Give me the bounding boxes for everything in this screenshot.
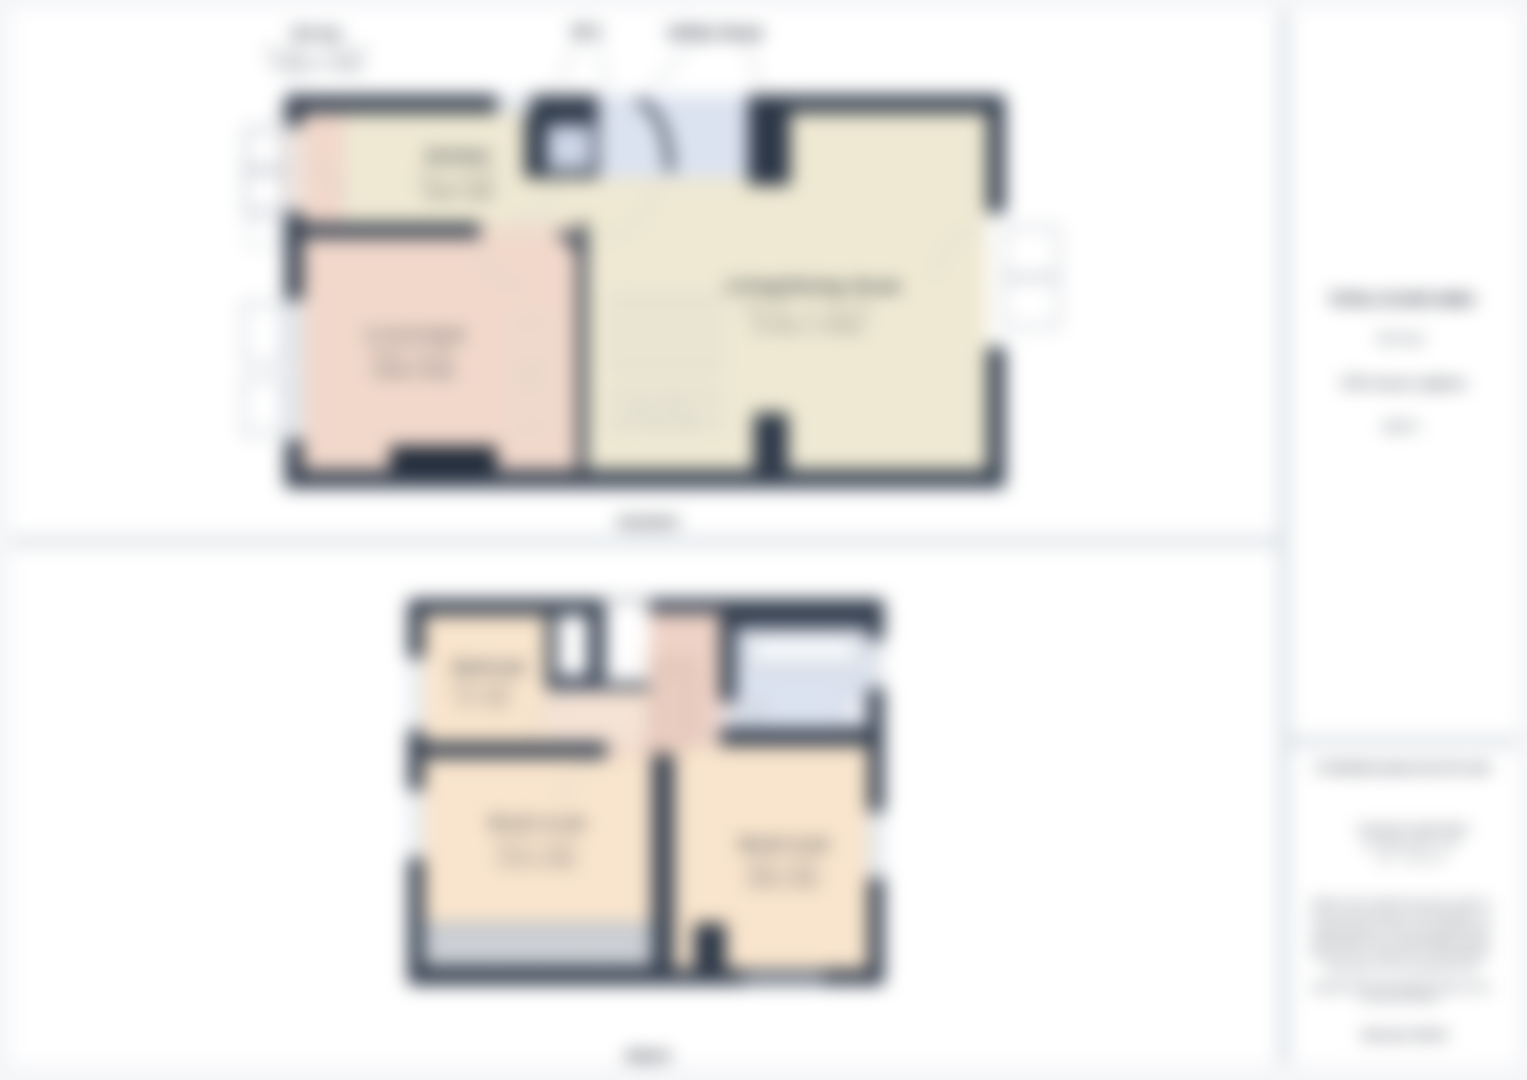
svg-text:by Metropix Ltd: by Metropix Ltd — [1365, 839, 1455, 849]
svg-text:measurements of doors and wind: measurements of doors and windows are — [1312, 924, 1490, 934]
svg-text:approx.: approx. — [1383, 420, 1421, 432]
svg-text:(4.50m x 3.40m): (4.50m x 3.40m) — [374, 367, 454, 378]
svg-text:(3.71m x 2.90m): (3.71m x 2.90m) — [499, 856, 575, 866]
svg-text:This plan is for illustrative: This plan is for illustrative use — [1326, 963, 1476, 973]
svg-text:Whilst every attempt has been: Whilst every attempt has been made to — [1312, 898, 1490, 908]
svg-text:ensure the accuracy of the flo: ensure the accuracy of the floorplan, al… — [1312, 911, 1490, 921]
svg-text:FIRST FLOOR: FIRST FLOOR — [625, 1051, 671, 1063]
svg-text:purposes only and should be us: purposes only and should be used as such — [1312, 982, 1490, 992]
svg-text:807 sq.ft.: 807 sq.ft. — [1379, 333, 1426, 345]
svg-text:(3.05m x 2.90m): (3.05m x 2.90m) — [748, 876, 818, 886]
svg-text:(75.0 sq.m.) approx.: (75.0 sq.m.) approx. — [1342, 376, 1468, 390]
svg-text:for any error, omission or mis: for any error, omission or mis-statement… — [1312, 950, 1490, 960]
svg-text:(2.62m x 1.98m): (2.62m x 1.98m) — [424, 188, 494, 198]
svg-text:GROUND FLOOR: GROUND FLOOR — [617, 517, 679, 529]
svg-text:For illustrative purposes only: For illustrative purposes only. Not to s… — [1316, 763, 1492, 774]
svg-text:by any purchaser.: by any purchaser. — [1361, 992, 1441, 1002]
svg-text:Produced for Agent Name: Produced for Agent Name — [1358, 824, 1468, 834]
svg-text:approximate and no responsibil: approximate and no responsibility is tak… — [1312, 937, 1490, 947]
svg-text:TOTAL FLOOR AREA: TOTAL FLOOR AREA — [1329, 291, 1475, 307]
